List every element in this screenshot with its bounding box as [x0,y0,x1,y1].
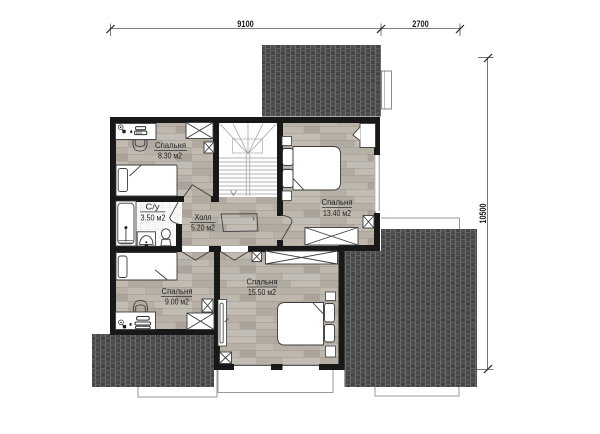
svg-text:Спальня: Спальня [247,277,278,287]
svg-text:5.20 м2: 5.20 м2 [191,223,215,233]
svg-text:Спальня: Спальня [155,140,186,150]
svg-text:2700: 2700 [412,19,429,30]
svg-text:С/у: С/у [146,202,161,212]
svg-text:13.40 м2: 13.40 м2 [323,208,351,218]
svg-text:9100: 9100 [237,19,254,30]
svg-text:Холл: Холл [195,212,212,222]
svg-text:Спальня: Спальня [162,286,193,296]
svg-text:8.30 м2: 8.30 м2 [158,151,182,161]
svg-text:10500: 10500 [478,204,489,224]
svg-text:9.00 м2: 9.00 м2 [165,297,189,307]
svg-text:Спальня: Спальня [322,197,353,207]
svg-text:3.50 м2: 3.50 м2 [141,213,166,223]
svg-text:15.50 м2: 15.50 м2 [248,287,276,297]
